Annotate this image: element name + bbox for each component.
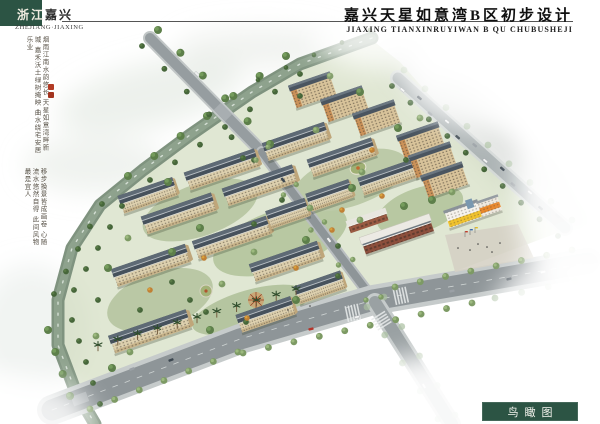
project-title-pinyin: JIAXING TIANXINRUYIWAN B QU CHUBUSHEJI [346, 25, 573, 34]
region-title-part1: 浙江 [17, 8, 45, 22]
region-subtitle: ZHEJIANG·JIAXING [15, 24, 84, 31]
red-seal-stamp-2 [48, 92, 54, 98]
red-seal-stamp [48, 84, 54, 90]
calligraphy-inscription: 烟雨江南水韵悠长 天星如意湾畔新城 嘉禾沃土绿树掩映 曲水绕宅安居乐业 [24, 36, 48, 158]
view-label-badge: 鸟瞰图 [482, 402, 578, 421]
calligraphy-inscription-2: 移步换景皆成画卷 心随流水悠然自得 此间风物最是宜人 [22, 168, 46, 246]
project-title: 嘉兴天星如意湾B区初步设计 [344, 4, 573, 25]
aerial-rendering [0, 0, 600, 424]
presentation-board: 浙江嘉兴 ZHEJIANG·JIAXING 嘉兴天星如意湾B区初步设计 JIAX… [0, 0, 600, 424]
region-title-part2: 嘉兴 [45, 8, 73, 22]
